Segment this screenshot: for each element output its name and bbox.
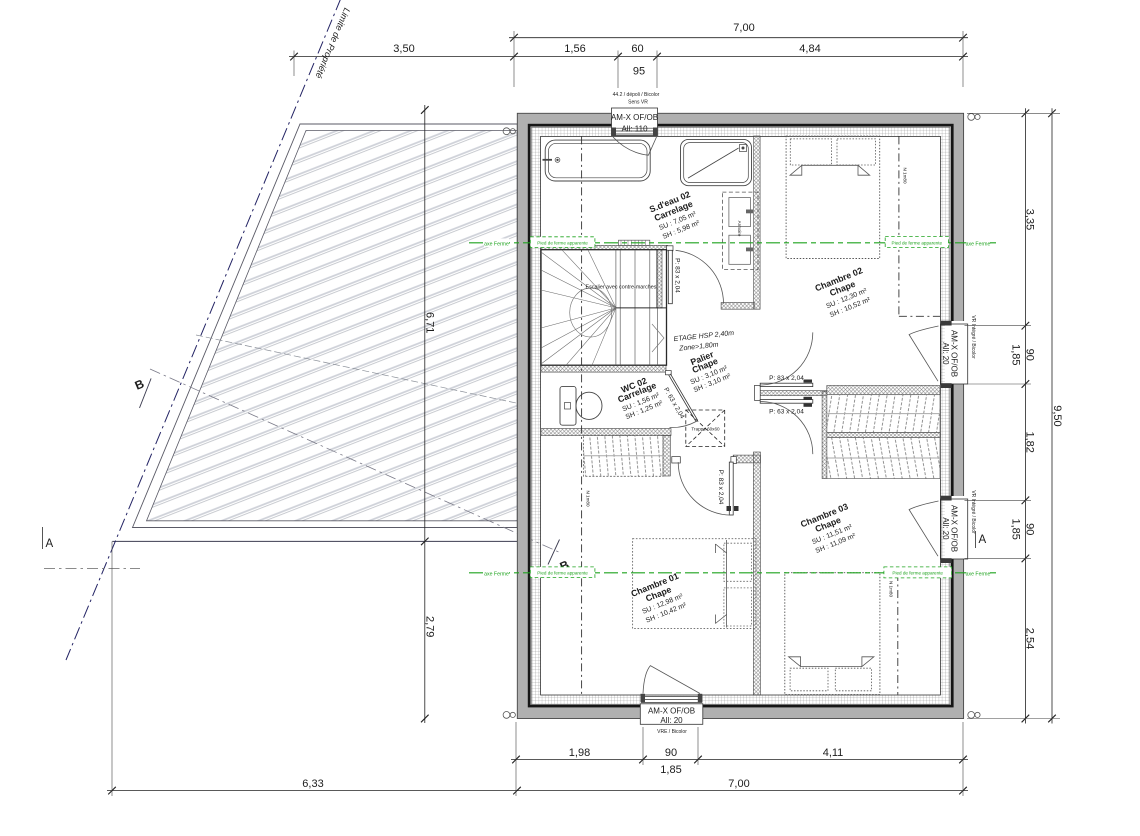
svg-text:7,00: 7,00 [733, 22, 754, 34]
svg-text:Pied de ferme apparente: Pied de ferme apparente [537, 570, 588, 575]
svg-text:N 1m80: N 1m80 [586, 490, 591, 507]
svg-text:VR Intégré / Bicolor: VR Intégré / Bicolor [970, 315, 976, 359]
svg-text:Pied de ferme apparente: Pied de ferme apparente [892, 240, 943, 245]
svg-text:1,85: 1,85 [1009, 344, 1021, 365]
svg-text:1,98: 1,98 [569, 747, 590, 759]
svg-text:4,84: 4,84 [799, 43, 820, 55]
svg-text:Trappe 60x60: Trappe 60x60 [691, 427, 720, 432]
svg-text:axe Ferme: axe Ferme [484, 572, 509, 578]
svg-text:1,85: 1,85 [660, 764, 681, 776]
svg-text:VR Intégré / Bicolor: VR Intégré / Bicolor [970, 490, 976, 534]
svg-text:9,50: 9,50 [1051, 405, 1063, 426]
svg-text:N 1m80: N 1m80 [889, 581, 894, 598]
svg-text:2,79: 2,79 [423, 616, 435, 637]
svg-text:Sens VR: Sens VR [628, 100, 648, 106]
svg-text:P: 83 x 2,04: P: 83 x 2,04 [717, 470, 724, 505]
svg-text:VRE / Bicolor: VRE / Bicolor [657, 729, 687, 735]
svg-text:3,35: 3,35 [1023, 209, 1035, 230]
svg-text:Armoire: Armoire [737, 221, 742, 237]
svg-text:4,11: 4,11 [823, 747, 844, 759]
svg-text:60: 60 [631, 43, 643, 55]
svg-text:axe Ferme: axe Ferme [484, 242, 509, 248]
svg-text:axe Ferme: axe Ferme [966, 572, 991, 578]
svg-text:2,54: 2,54 [1023, 628, 1035, 649]
svg-text:All: 110: All: 110 [621, 125, 648, 134]
svg-text:90: 90 [665, 747, 677, 759]
svg-text:Pied de ferme apparente: Pied de ferme apparente [892, 570, 943, 575]
svg-text:N 1m80: N 1m80 [903, 167, 908, 184]
svg-text:P: 63 x 2,04: P: 63 x 2,04 [769, 409, 804, 416]
svg-text:axe Ferme: axe Ferme [966, 242, 991, 248]
svg-text:Escalier avec contre-marches: Escalier avec contre-marches [585, 285, 656, 291]
svg-text:44.2 / dépoli / Bicolor: 44.2 / dépoli / Bicolor [613, 92, 660, 98]
svg-text:7,00: 7,00 [728, 778, 749, 790]
svg-text:All: 20: All: 20 [660, 716, 683, 725]
svg-text:Pied de ferme apparente: Pied de ferme apparente [537, 240, 588, 245]
svg-text:AM-X OF/OB: AM-X OF/OB [611, 113, 658, 122]
svg-text:95: 95 [633, 66, 645, 78]
svg-text:All: 20: All: 20 [941, 517, 950, 540]
svg-text:3,50: 3,50 [393, 43, 414, 55]
svg-text:6,33: 6,33 [302, 778, 323, 790]
svg-text:P: 83 x 2,04: P: 83 x 2,04 [674, 258, 681, 293]
svg-text:AM-X OF/OB: AM-X OF/OB [648, 707, 695, 716]
svg-text:A: A [979, 534, 987, 546]
svg-text:1,82: 1,82 [1023, 431, 1035, 452]
svg-text:1,56: 1,56 [564, 43, 585, 55]
svg-text:A: A [46, 538, 54, 550]
svg-text:All: 20: All: 20 [941, 342, 950, 365]
svg-text:1,85: 1,85 [1009, 518, 1021, 539]
svg-text:P: 83 x 2,04: P: 83 x 2,04 [769, 375, 804, 382]
svg-text:90: 90 [1023, 523, 1035, 535]
svg-text:90: 90 [1023, 349, 1035, 361]
svg-text:6,71: 6,71 [423, 312, 435, 333]
